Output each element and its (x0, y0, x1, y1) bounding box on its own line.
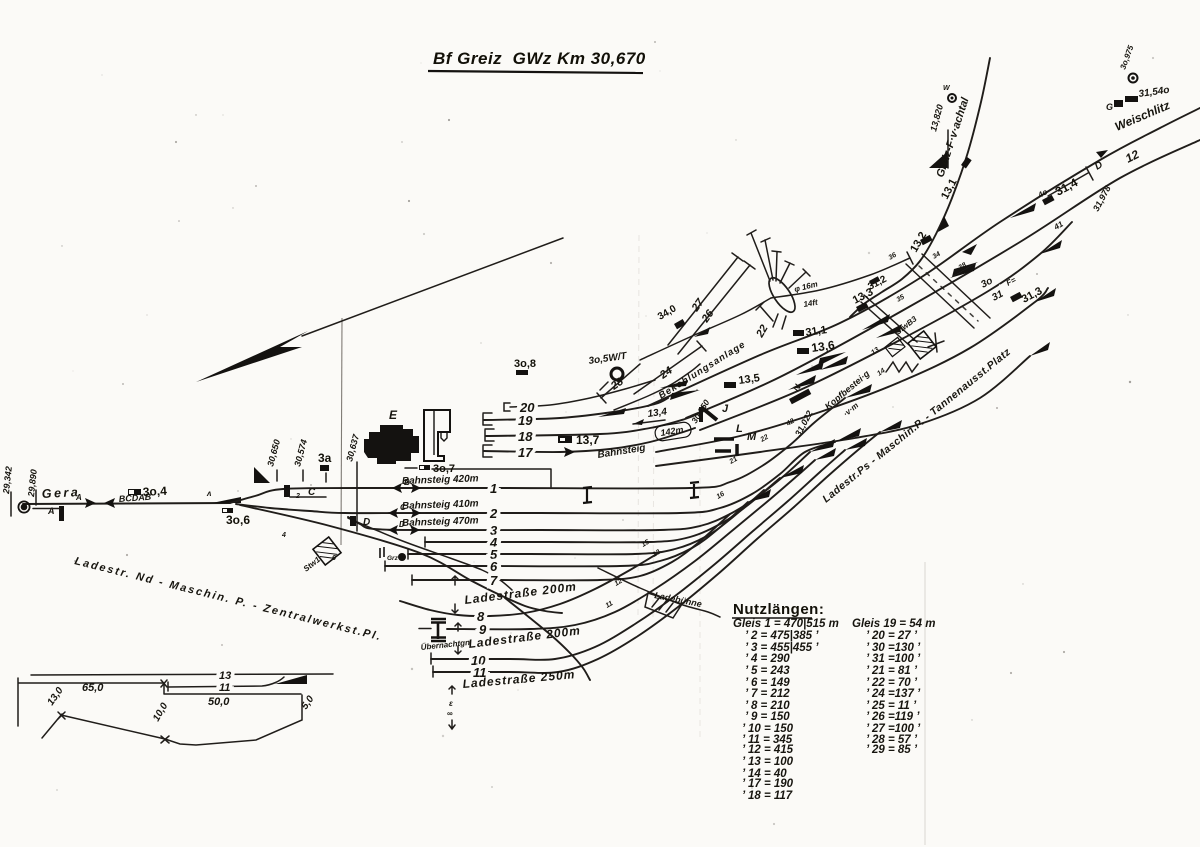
svg-text:ʌ: ʌ (206, 489, 211, 498)
svg-text:Bf Greiz GWz Km 30,670: Bf Greiz GWz Km 30,670 (433, 49, 646, 68)
svg-text:’ 12 = 415: ’ 12 = 415 (742, 744, 794, 756)
svg-text:’ 21 = 81 ’: ’ 21 = 81 ’ (866, 665, 918, 677)
svg-text:18: 18 (518, 429, 533, 444)
svg-text:Gleis 1 = 470|515 m: Gleis 1 = 470|515 m (733, 618, 839, 630)
svg-text:’ 9 = 150: ’ 9 = 150 (745, 711, 790, 723)
svg-text:4: 4 (281, 532, 286, 539)
svg-text:’ 29 = 85 ’: ’ 29 = 85 ’ (866, 744, 918, 756)
svg-text:6: 6 (332, 555, 336, 562)
svg-text:M: M (747, 431, 757, 443)
svg-text:’ 5 = 243: ’ 5 = 243 (745, 665, 790, 677)
svg-text:C: C (308, 487, 316, 498)
svg-text:’ 17 = 190: ’ 17 = 190 (742, 778, 794, 790)
svg-text:50,0: 50,0 (208, 696, 230, 708)
svg-text:1: 1 (490, 481, 497, 496)
svg-text:∞: ∞ (447, 709, 453, 718)
svg-text:3o,7: 3o,7 (433, 463, 455, 475)
svg-text:3o,6: 3o,6 (226, 513, 250, 527)
svg-text:A: A (75, 493, 82, 502)
svg-text:L: L (736, 423, 743, 435)
svg-text:19: 19 (518, 413, 533, 428)
svg-text:D: D (363, 517, 370, 528)
svg-text:3o,8: 3o,8 (514, 358, 536, 370)
svg-text:3a: 3a (318, 451, 332, 465)
svg-text:D: D (399, 520, 405, 529)
svg-text:65,0: 65,0 (82, 682, 104, 694)
svg-text:Gera: Gera (41, 485, 80, 501)
svg-text:3o,4: 3o,4 (142, 484, 167, 499)
svg-text:’ 18 = 117: ’ 18 = 117 (742, 790, 793, 802)
svg-text:Grz: Grz (387, 555, 399, 562)
svg-text:’ 2 = 475|385 ’: ’ 2 = 475|385 ’ (745, 630, 819, 642)
svg-text:E: E (389, 408, 398, 422)
svg-text:’ 24 =137 ’: ’ 24 =137 ’ (866, 688, 921, 700)
svg-text:Nutzlängen:: Nutzlängen: (733, 601, 824, 618)
svg-text:A: A (47, 506, 55, 516)
svg-text:’ 4 = 290: ’ 4 = 290 (745, 653, 790, 665)
svg-text:B: B (404, 478, 410, 487)
svg-text:’ 26 =119 ’: ’ 26 =119 ’ (866, 711, 920, 723)
svg-text:ε: ε (449, 699, 453, 708)
svg-text:Gleis 19 = 54 m: Gleis 19 = 54 m (852, 618, 935, 630)
svg-text:6: 6 (490, 559, 498, 574)
svg-text:2: 2 (489, 506, 498, 521)
svg-text:17: 17 (518, 445, 533, 460)
svg-text:13: 13 (219, 670, 231, 682)
svg-text:J: J (722, 403, 729, 415)
svg-text:G: G (1106, 102, 1113, 112)
svg-text:13,7: 13,7 (576, 433, 600, 447)
svg-text:’ 20 = 27 ’: ’ 20 = 27 ’ (866, 630, 918, 642)
svg-text:7: 7 (490, 573, 498, 588)
svg-text:’ 13 = 100: ’ 13 = 100 (742, 756, 794, 768)
svg-text:20: 20 (519, 400, 535, 415)
svg-text:’ 31 =100 ’: ’ 31 =100 ’ (866, 653, 921, 665)
svg-text:C: C (400, 503, 406, 512)
svg-text:11: 11 (219, 682, 230, 694)
svg-text:’ 7 = 212: ’ 7 = 212 (745, 688, 790, 700)
